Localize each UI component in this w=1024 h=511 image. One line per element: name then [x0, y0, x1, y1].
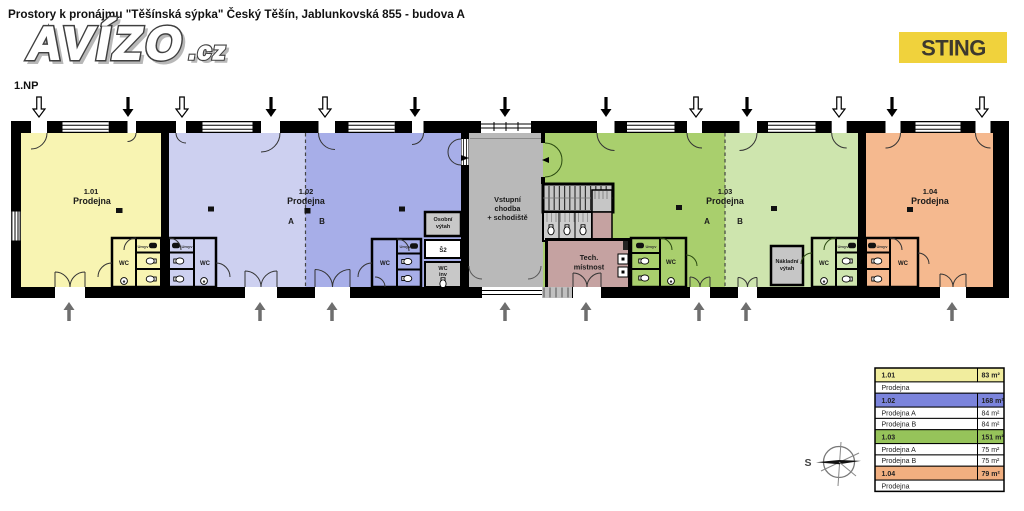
svg-text:inv: inv: [439, 272, 448, 278]
svg-text:Vstupní: Vstupní: [494, 195, 522, 204]
svg-text:WC: WC: [380, 261, 391, 267]
svg-text:1.03: 1.03: [882, 434, 896, 441]
svg-text:1.04: 1.04: [923, 187, 938, 196]
svg-text:chodba: chodba: [495, 204, 522, 213]
svg-text:A: A: [704, 217, 710, 226]
svg-text:WC: WC: [119, 261, 130, 267]
svg-text:Umyv: Umyv: [838, 244, 850, 249]
svg-text:Prodejna: Prodejna: [911, 196, 949, 206]
svg-text:168 m²: 168 m²: [982, 398, 1005, 405]
svg-text:Prodejna: Prodejna: [287, 196, 325, 206]
svg-text:83 m²: 83 m²: [982, 373, 1001, 380]
svg-text:1.03: 1.03: [718, 187, 733, 196]
svg-text:Prodejna: Prodejna: [882, 385, 910, 392]
svg-text:Prodejna: Prodejna: [882, 483, 910, 490]
svg-text:STING: STING: [921, 36, 986, 61]
svg-text:Prodejna: Prodejna: [73, 196, 111, 206]
svg-text:1.01: 1.01: [84, 187, 99, 196]
svg-text:Umyv: Umyv: [182, 244, 194, 249]
svg-text:1.04: 1.04: [882, 471, 896, 478]
svg-text:Umyv: Umyv: [138, 244, 150, 249]
svg-text:Tech.: Tech.: [580, 253, 599, 262]
svg-text:WC: WC: [819, 261, 830, 267]
svg-text:+ schodiště: + schodiště: [487, 213, 527, 222]
svg-text:1.NP: 1.NP: [14, 80, 38, 92]
svg-text:WC: WC: [666, 260, 677, 266]
svg-text:Umyv: Umyv: [400, 244, 412, 249]
svg-text:WC: WC: [200, 261, 211, 267]
svg-text:75 m²: 75 m²: [982, 447, 1001, 454]
svg-text:Prodejna B: Prodejna B: [882, 458, 917, 465]
svg-text:79 m²: 79 m²: [982, 471, 1001, 478]
svg-text:84 m²: 84 m²: [982, 410, 1001, 417]
svg-text:místnost: místnost: [574, 263, 605, 272]
svg-text:Prodejna: Prodejna: [706, 196, 744, 206]
svg-text:A: A: [288, 217, 294, 226]
svg-text:B: B: [737, 217, 743, 226]
svg-text:84 m²: 84 m²: [982, 422, 1001, 429]
svg-text:151 m²: 151 m²: [982, 434, 1005, 441]
svg-text:.cz: .cz: [187, 38, 230, 65]
svg-text:Umyv: Umyv: [877, 244, 889, 249]
svg-text:S: S: [804, 457, 811, 469]
svg-text:Prodejna A: Prodejna A: [882, 410, 917, 417]
svg-text:75 m²: 75 m²: [982, 458, 1001, 465]
svg-text:Š2: Š2: [439, 246, 447, 254]
svg-text:Umyv: Umyv: [646, 244, 658, 249]
svg-text:Nákladní: Nákladní: [776, 259, 799, 265]
svg-text:výtah: výtah: [780, 266, 795, 272]
svg-text:1.02: 1.02: [299, 187, 314, 196]
svg-text:1.01: 1.01: [882, 373, 896, 380]
svg-text:1.02: 1.02: [882, 398, 896, 405]
svg-text:Prodejna B: Prodejna B: [882, 422, 917, 429]
svg-text:WC: WC: [898, 261, 909, 267]
svg-text:Osobní: Osobní: [434, 217, 453, 223]
svg-text:B: B: [319, 217, 325, 226]
svg-text:výtah: výtah: [436, 224, 451, 230]
svg-text:AVÍZO: AVÍZO: [24, 17, 190, 69]
svg-text:Prodejna A: Prodejna A: [882, 447, 917, 454]
